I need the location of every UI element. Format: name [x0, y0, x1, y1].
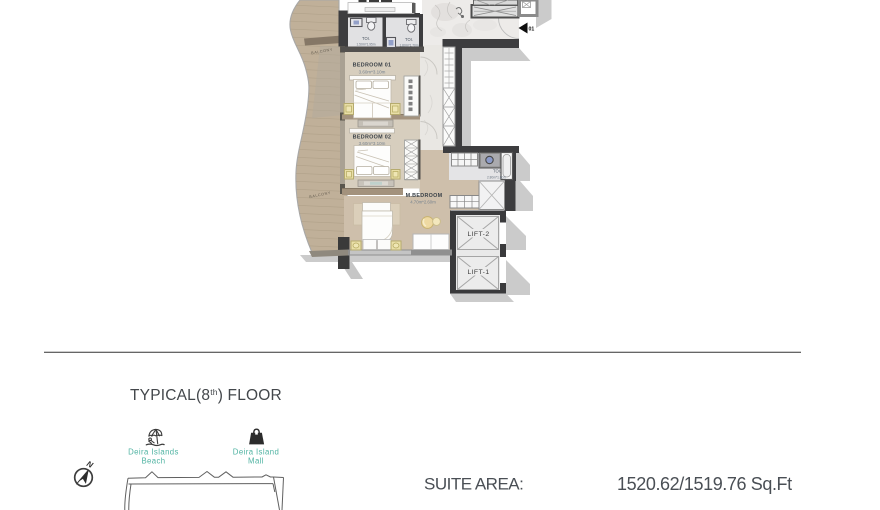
svg-text:01: 01: [529, 27, 535, 33]
svg-text:TOI.: TOI.: [362, 36, 370, 41]
svg-text:BEDROOM 02: BEDROOM 02: [353, 135, 392, 141]
svg-text:M.BEDROOM: M.BEDROOM: [406, 193, 443, 199]
svg-text:4.70m*2.60m: 4.70m*2.60m: [410, 200, 436, 205]
svg-text:TYPICAL(8th) FLOOR: TYPICAL(8th) FLOOR: [130, 387, 282, 404]
svg-text:LIFT-2: LIFT-2: [467, 231, 489, 238]
svg-text:TOI.: TOI.: [493, 169, 501, 174]
svg-text:Mall: Mall: [248, 457, 264, 466]
svg-text:1.50m*1.95m: 1.50m*1.95m: [357, 43, 376, 47]
svg-text:Deira Island: Deira Island: [233, 448, 279, 457]
svg-text:SUITE AREA:: SUITE AREA:: [424, 475, 523, 494]
svg-text:2.80m*1.80m: 2.80m*1.80m: [487, 176, 506, 180]
svg-text:LIFT-1: LIFT-1: [467, 269, 489, 276]
svg-text:TOI.: TOI.: [405, 37, 413, 42]
svg-text:BEDROOM 01: BEDROOM 01: [353, 63, 392, 69]
svg-text:3.60m*3.10m: 3.60m*3.10m: [359, 70, 386, 75]
svg-text:1.80m*1.70m: 1.80m*1.70m: [400, 44, 419, 48]
svg-text:1520.62/1519.76 Sq.Ft: 1520.62/1519.76 Sq.Ft: [617, 474, 792, 494]
svg-text:Deira Islands: Deira Islands: [128, 448, 179, 457]
svg-text:Beach: Beach: [141, 457, 165, 466]
